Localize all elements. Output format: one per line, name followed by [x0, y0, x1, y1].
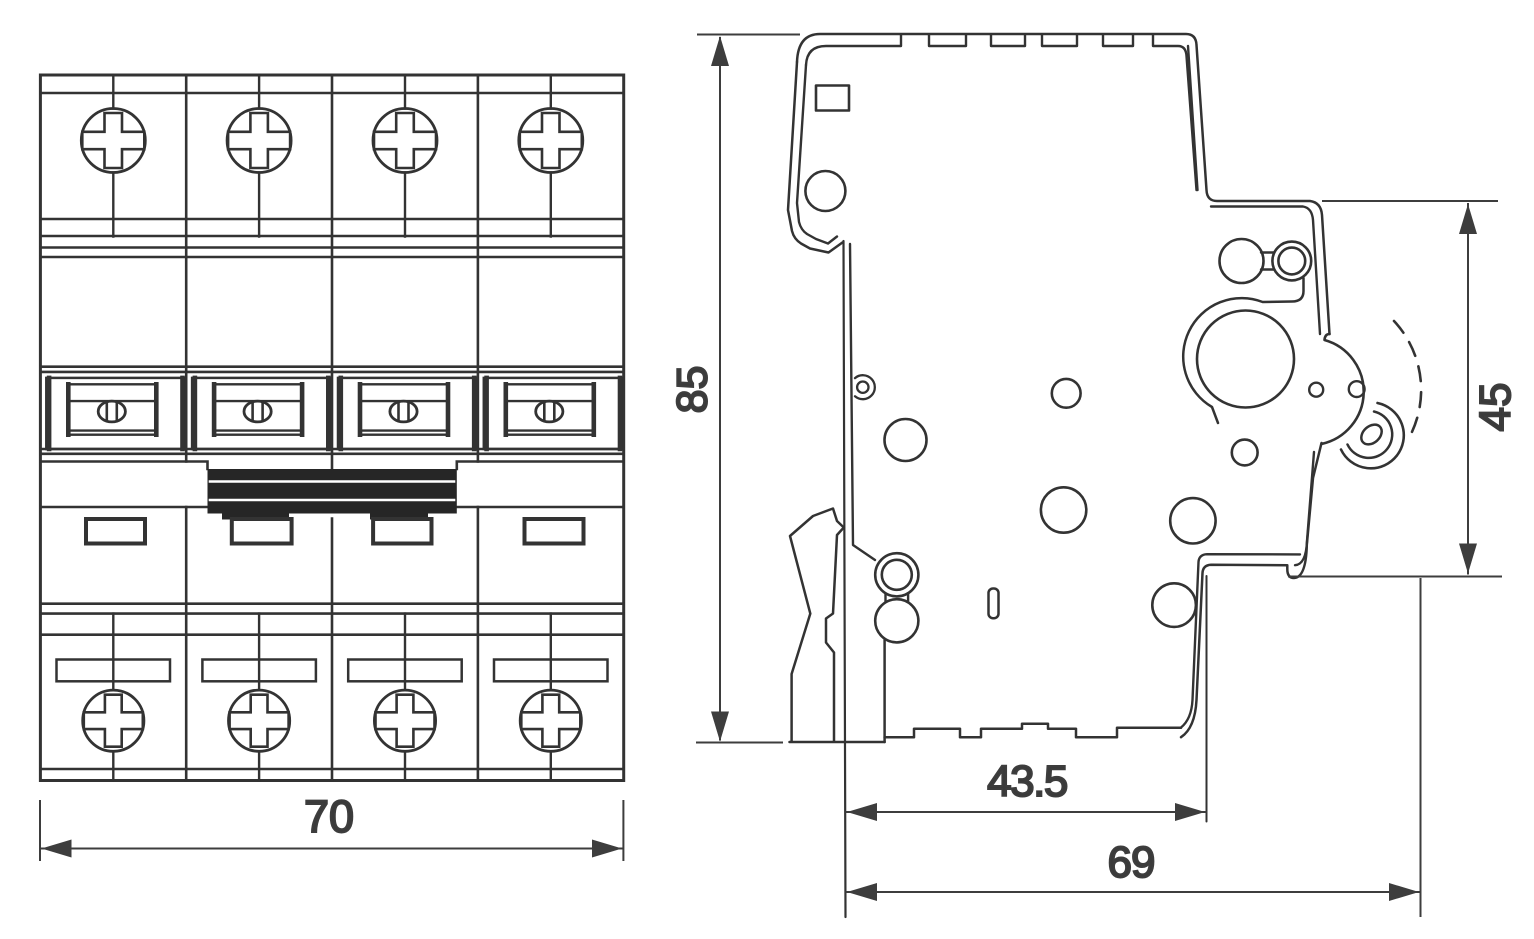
svg-text:69: 69: [1108, 838, 1155, 887]
svg-text:85: 85: [669, 366, 717, 414]
svg-text:45: 45: [1471, 383, 1520, 432]
svg-text:43.5: 43.5: [987, 757, 1067, 806]
svg-text:70: 70: [304, 791, 354, 842]
